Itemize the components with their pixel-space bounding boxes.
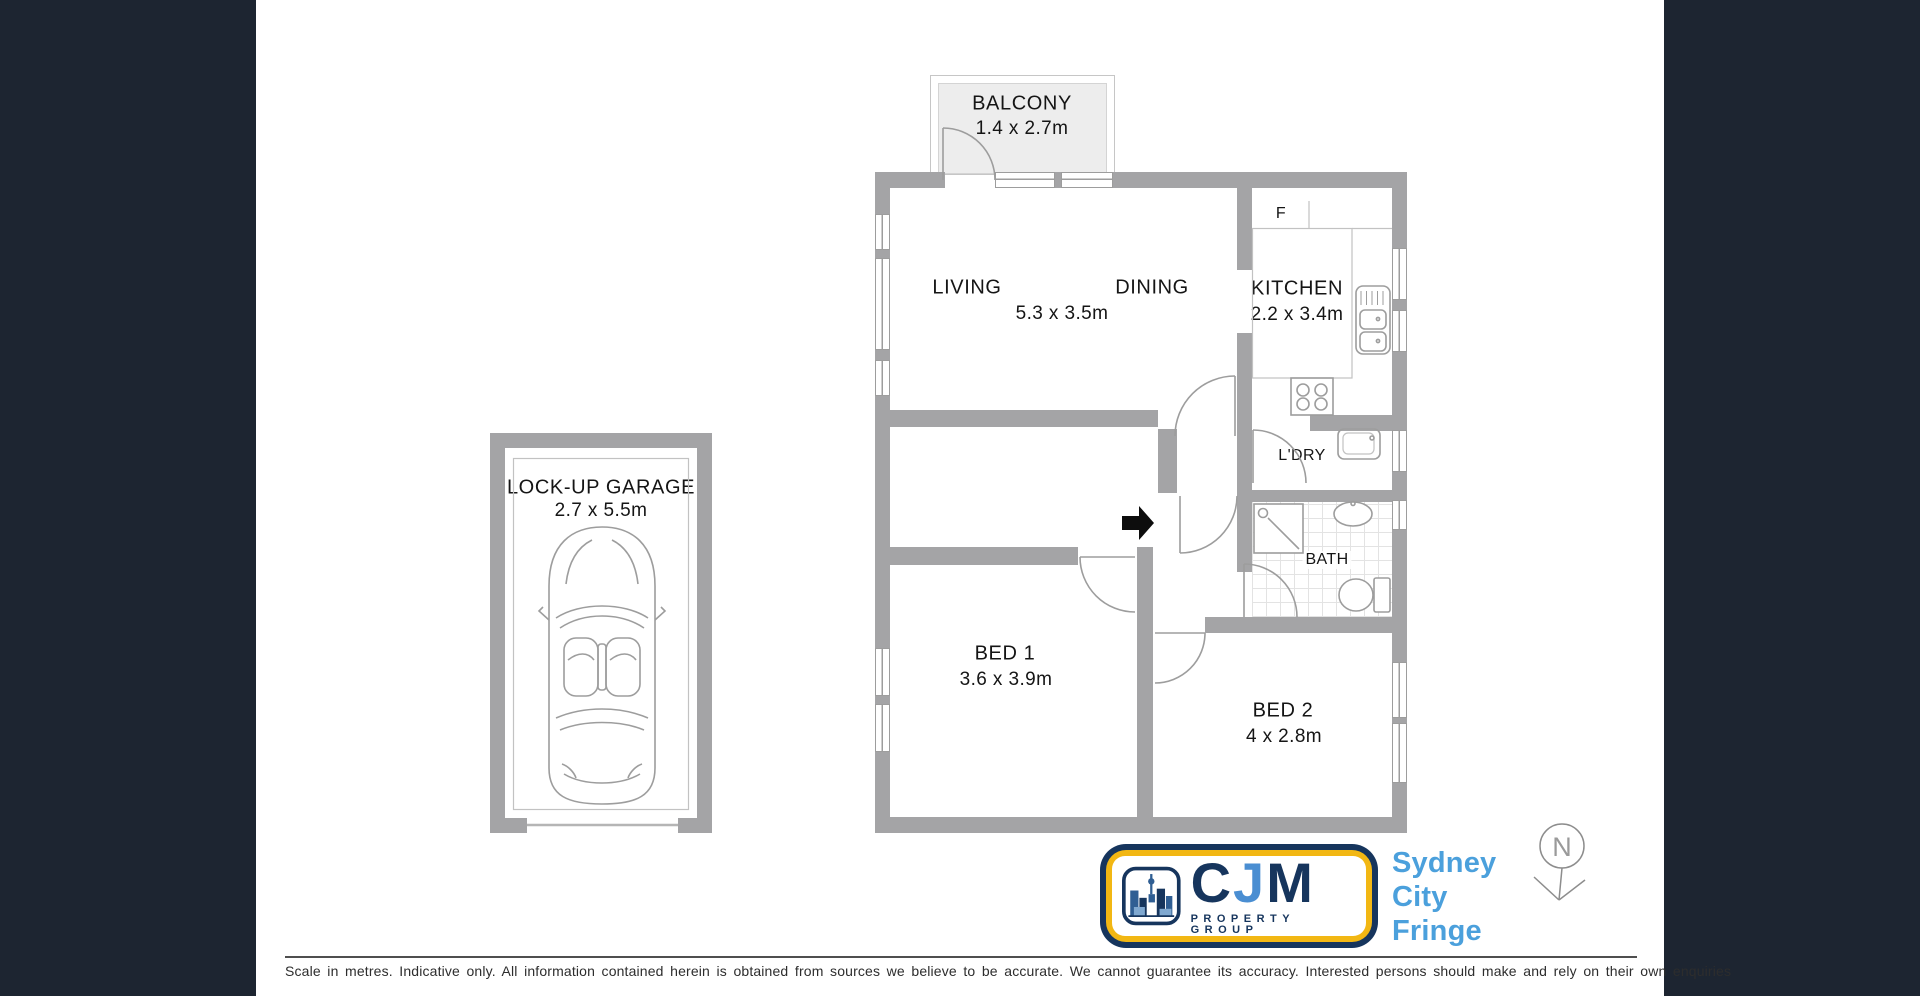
- wall-segment: [1392, 172, 1407, 248]
- living-label: LIVING: [932, 277, 1001, 300]
- window: [875, 648, 890, 696]
- region-line: City: [1392, 880, 1496, 914]
- bed1-door-arc: [1080, 557, 1135, 612]
- garage-door-opening: [527, 818, 678, 833]
- laundry-tub: [1338, 429, 1380, 459]
- cjm-logo-gold-ring: CJM PROPERTY GROUP: [1106, 850, 1372, 942]
- kitchen-label: KITCHEN: [1251, 278, 1343, 301]
- left-dark-panel: [0, 0, 256, 996]
- bed2-label: BED 2: [1253, 700, 1314, 723]
- balcony-dims: 1.4 x 2.7m: [976, 118, 1069, 140]
- wall-bed2-top: [1205, 617, 1407, 633]
- garage-label: LOCK-UP GARAGE: [507, 477, 695, 500]
- wall-segment: [1392, 783, 1407, 833]
- logo-letter-m: M: [1266, 851, 1315, 914]
- kitchen-sink: [1356, 286, 1390, 354]
- wall-segment: [1392, 472, 1407, 500]
- cjm-logo-text: CJM PROPERTY GROUP: [1191, 856, 1356, 935]
- front-door-arc: [1180, 496, 1237, 553]
- balcony-label: BALCONY: [972, 93, 1072, 116]
- kitchen-dims: 2.2 x 3.4m: [1251, 304, 1344, 326]
- living-dining-dims: 5.3 x 3.5m: [1016, 303, 1109, 325]
- window: [1392, 662, 1407, 718]
- wall-kitchen-left-upper: [1237, 187, 1252, 270]
- wall-segment: [1392, 530, 1407, 662]
- region-title: Sydney City Fringe: [1392, 846, 1496, 948]
- logo-letter-c: C: [1191, 851, 1233, 914]
- cjm-logo-inner: CJM PROPERTY GROUP: [1112, 856, 1366, 936]
- window: [1392, 310, 1407, 352]
- window: [875, 704, 890, 752]
- laundry-label: L'DRY: [1278, 447, 1325, 465]
- compass-letter: N: [1552, 832, 1572, 862]
- right-dark-panel: [1664, 0, 1920, 996]
- bath-label: BATH: [1302, 551, 1351, 569]
- wall-laundry-bath: [1252, 490, 1392, 502]
- cooktop: [1291, 378, 1333, 415]
- wall-bed1-top: [875, 547, 1078, 565]
- dining-label: DINING: [1115, 277, 1189, 300]
- logo-subtitle: PROPERTY GROUP: [1191, 914, 1356, 936]
- wall-kitchen-left-lower: [1237, 333, 1252, 431]
- window: [875, 214, 890, 250]
- north-compass-icon: N: [1534, 824, 1585, 900]
- bed2-door-arc: [1155, 633, 1205, 683]
- wall-segment: [875, 396, 890, 648]
- wall-segment: [875, 350, 890, 360]
- wall-kitchen-bottom: [1310, 415, 1392, 431]
- wall-segment: [875, 250, 890, 258]
- region-line: Fringe: [1392, 914, 1496, 948]
- wall-segment: [875, 172, 890, 214]
- fridge-label: F: [1276, 205, 1286, 223]
- disclaimer-text: Scale in metres. Indicative only. All in…: [285, 956, 1637, 979]
- garage-dims: 2.7 x 5.5m: [555, 500, 648, 522]
- window: [1392, 723, 1407, 783]
- wall-living-hall: [875, 410, 1158, 427]
- cjm-letters: CJM: [1191, 856, 1356, 909]
- wall-entry-pillar: [1158, 429, 1177, 493]
- cjm-logo: CJM PROPERTY GROUP: [1100, 844, 1378, 948]
- window: [1061, 172, 1113, 188]
- window: [1392, 248, 1407, 300]
- logo-letter-j: J: [1233, 851, 1266, 914]
- window: [995, 172, 1055, 188]
- bed1-label: BED 1: [975, 643, 1036, 666]
- cjm-skyline-icon: [1122, 864, 1181, 928]
- bed1-dims: 3.6 x 3.9m: [960, 669, 1053, 691]
- window: [1392, 430, 1407, 472]
- wall-segment: [1392, 300, 1407, 310]
- wall-bed1-right: [1137, 547, 1153, 833]
- window: [875, 258, 890, 350]
- wall-segment: [1392, 352, 1407, 430]
- wall-segment: [1113, 172, 1407, 188]
- bed2-dims: 4 x 2.8m: [1246, 726, 1322, 748]
- kitchen-door-arc: [1175, 376, 1235, 436]
- wall-bath-left: [1237, 431, 1252, 572]
- window: [875, 360, 890, 396]
- wall-segment: [875, 696, 890, 704]
- entry-arrow-icon: [1122, 506, 1154, 540]
- window: [1392, 500, 1407, 530]
- region-line: Sydney: [1392, 846, 1496, 880]
